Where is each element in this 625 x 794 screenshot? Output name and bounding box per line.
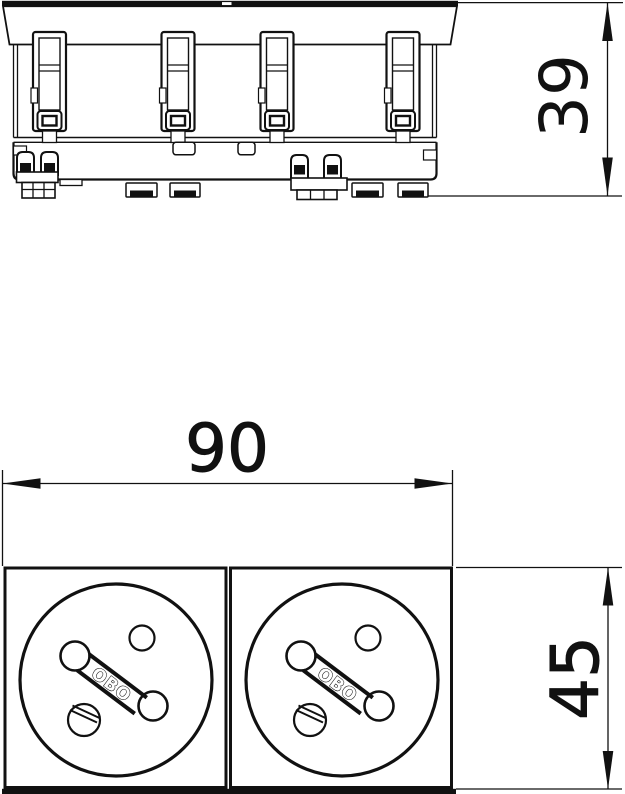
top-bar-notch [222,2,233,6]
dimension-label-90: 90 [185,410,269,487]
housing-right-latch [424,150,437,160]
arrow-right-icon [415,478,453,489]
dimension-90: 90 [3,410,453,566]
mounting-clip [259,32,294,143]
front-view: 90 OBO [2,410,622,794]
socket-module-right: OBO [231,568,452,788]
lower-housing [14,142,437,179]
mounting-clips [31,32,420,143]
housing-tab [173,142,195,155]
technical-drawing: 39 90 OBO [0,0,625,794]
mounting-clip [160,32,195,143]
arrow-up-icon [602,3,613,41]
dimension-label-39: 39 [526,54,603,138]
flat-tab [60,180,82,186]
socket-module-left: OBO [5,568,226,788]
screw-foot-center [291,178,347,200]
dimension-45: 45 [456,568,622,790]
arrow-left-icon [3,478,41,489]
dimension-39: 39 [428,3,622,196]
arrow-down-icon [602,158,613,196]
contact-hooks [17,152,341,179]
dimension-label-45: 45 [537,636,614,720]
mounting-clip [385,32,420,143]
feet [126,183,428,197]
mounting-clip [31,32,66,143]
screw-foot-left [17,172,59,198]
arrow-down-icon [603,751,614,789]
arrow-up-icon [603,568,614,606]
housing-tab [238,142,255,155]
